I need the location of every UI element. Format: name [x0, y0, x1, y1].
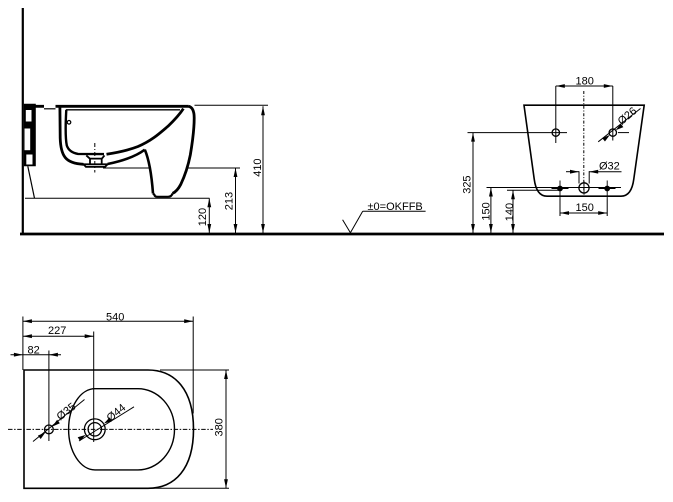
svg-text:150: 150 [481, 202, 493, 220]
svg-text:82: 82 [28, 345, 40, 357]
svg-text:540: 540 [106, 311, 124, 323]
svg-text:227: 227 [48, 325, 66, 337]
svg-text:140: 140 [504, 203, 516, 221]
svg-text:325: 325 [462, 175, 474, 193]
svg-text:Ø32: Ø32 [599, 161, 620, 173]
svg-text:180: 180 [576, 76, 594, 88]
svg-text:410: 410 [252, 158, 264, 176]
svg-text:380: 380 [214, 418, 226, 436]
svg-text:120: 120 [197, 208, 209, 226]
svg-text:213: 213 [223, 192, 235, 210]
svg-text:Ø26: Ø26 [616, 105, 640, 128]
svg-text:150: 150 [576, 202, 594, 214]
